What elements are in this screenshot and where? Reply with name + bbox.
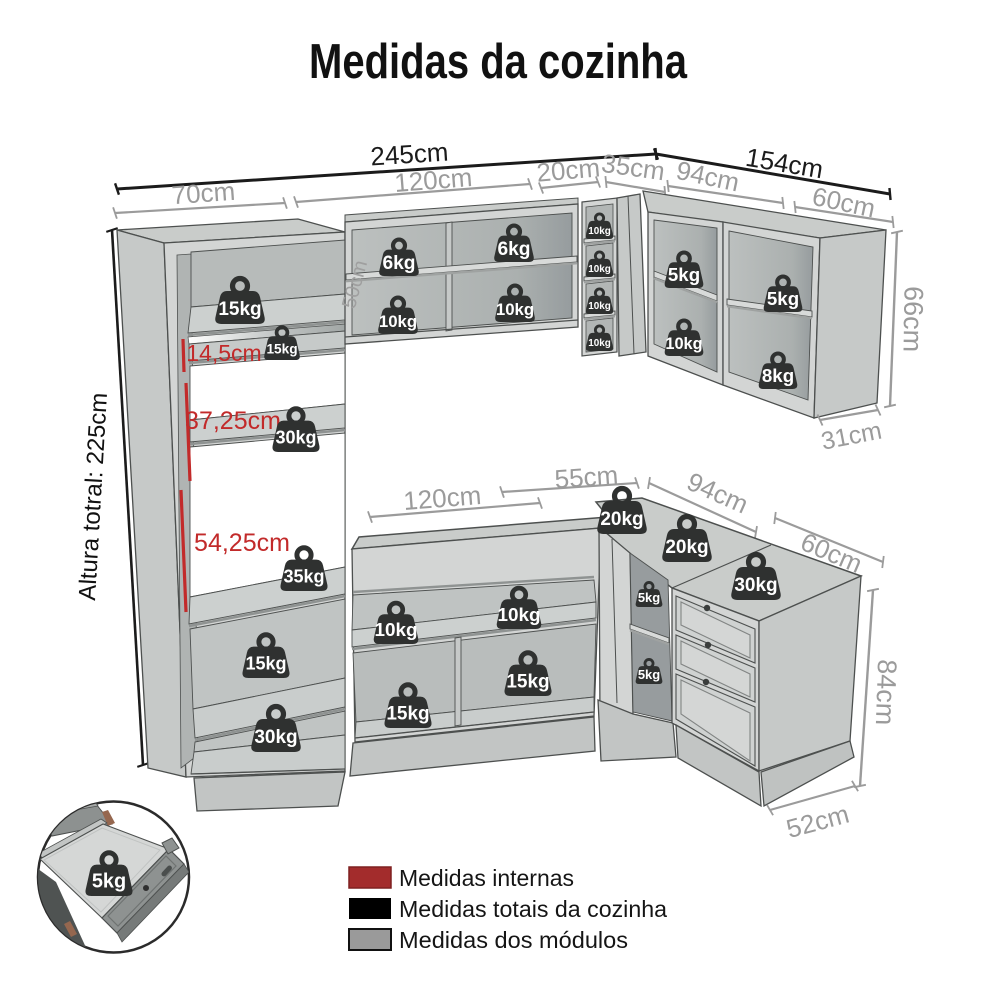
- svg-text:31cm: 31cm: [819, 417, 884, 456]
- svg-text:Medidas dos módulos: Medidas dos módulos: [399, 927, 628, 953]
- svg-text:55cm: 55cm: [554, 460, 620, 494]
- svg-text:54,25cm: 54,25cm: [194, 529, 290, 557]
- svg-text:52cm: 52cm: [783, 799, 852, 844]
- svg-text:6kg: 6kg: [497, 239, 530, 260]
- svg-text:10kg: 10kg: [665, 335, 702, 353]
- svg-text:20cm: 20cm: [535, 152, 601, 187]
- svg-text:15kg: 15kg: [218, 299, 261, 320]
- svg-text:10kg: 10kg: [588, 264, 611, 275]
- svg-text:10kg: 10kg: [588, 226, 611, 237]
- svg-text:120cm: 120cm: [393, 162, 473, 198]
- svg-text:15kg: 15kg: [266, 342, 297, 357]
- svg-text:60cm: 60cm: [810, 181, 878, 224]
- svg-text:Medidas da cozinha: Medidas da cozinha: [309, 35, 688, 89]
- svg-text:6kg: 6kg: [382, 253, 415, 274]
- svg-text:10kg: 10kg: [374, 620, 417, 641]
- svg-text:5kg: 5kg: [92, 870, 126, 892]
- svg-text:66cm: 66cm: [897, 286, 928, 353]
- svg-text:10kg: 10kg: [496, 300, 534, 319]
- svg-text:5kg: 5kg: [767, 288, 799, 309]
- svg-text:5kg: 5kg: [638, 590, 660, 605]
- svg-text:37,25cm: 37,25cm: [185, 407, 281, 435]
- svg-text:35kg: 35kg: [283, 566, 324, 586]
- svg-text:20kg: 20kg: [600, 509, 643, 530]
- svg-text:94cm: 94cm: [683, 466, 753, 519]
- svg-text:15kg: 15kg: [245, 653, 286, 673]
- svg-text:70cm: 70cm: [171, 176, 237, 210]
- svg-text:10kg: 10kg: [497, 605, 540, 626]
- svg-text:30kg: 30kg: [734, 575, 777, 596]
- svg-text:15kg: 15kg: [386, 703, 429, 724]
- svg-text:10kg: 10kg: [588, 301, 611, 312]
- svg-text:10kg: 10kg: [588, 338, 611, 349]
- svg-text:120cm: 120cm: [402, 480, 482, 516]
- svg-text:94cm: 94cm: [674, 155, 742, 198]
- svg-text:5kg: 5kg: [668, 264, 700, 285]
- svg-text:14,5cm: 14,5cm: [186, 340, 261, 366]
- svg-text:Medidas internas: Medidas internas: [399, 865, 574, 891]
- svg-text:10kg: 10kg: [379, 312, 417, 331]
- svg-text:15kg: 15kg: [506, 671, 549, 692]
- svg-text:5kg: 5kg: [638, 667, 660, 682]
- svg-text:8kg: 8kg: [762, 365, 794, 386]
- svg-text:154cm: 154cm: [744, 142, 826, 184]
- svg-text:30kg: 30kg: [275, 427, 316, 447]
- svg-text:Altura totral: 225cm: Altura totral: 225cm: [74, 392, 113, 601]
- svg-text:30kg: 30kg: [254, 727, 297, 748]
- svg-text:Medidas totais da cozinha: Medidas totais da cozinha: [399, 896, 667, 922]
- svg-text:84cm: 84cm: [870, 659, 902, 726]
- svg-text:20kg: 20kg: [665, 537, 708, 558]
